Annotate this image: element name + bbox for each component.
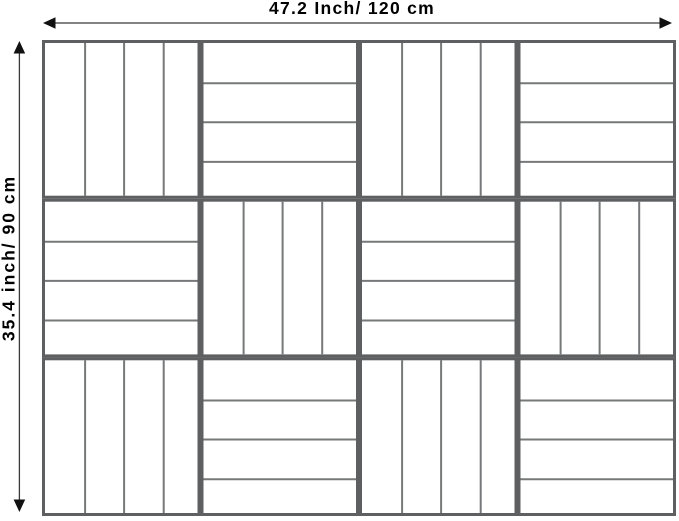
svg-text:47.2 Inch/ 120 cm: 47.2 Inch/ 120 cm — [269, 0, 435, 18]
svg-text:35.4 inch/ 90 cm: 35.4 inch/ 90 cm — [0, 175, 19, 341]
